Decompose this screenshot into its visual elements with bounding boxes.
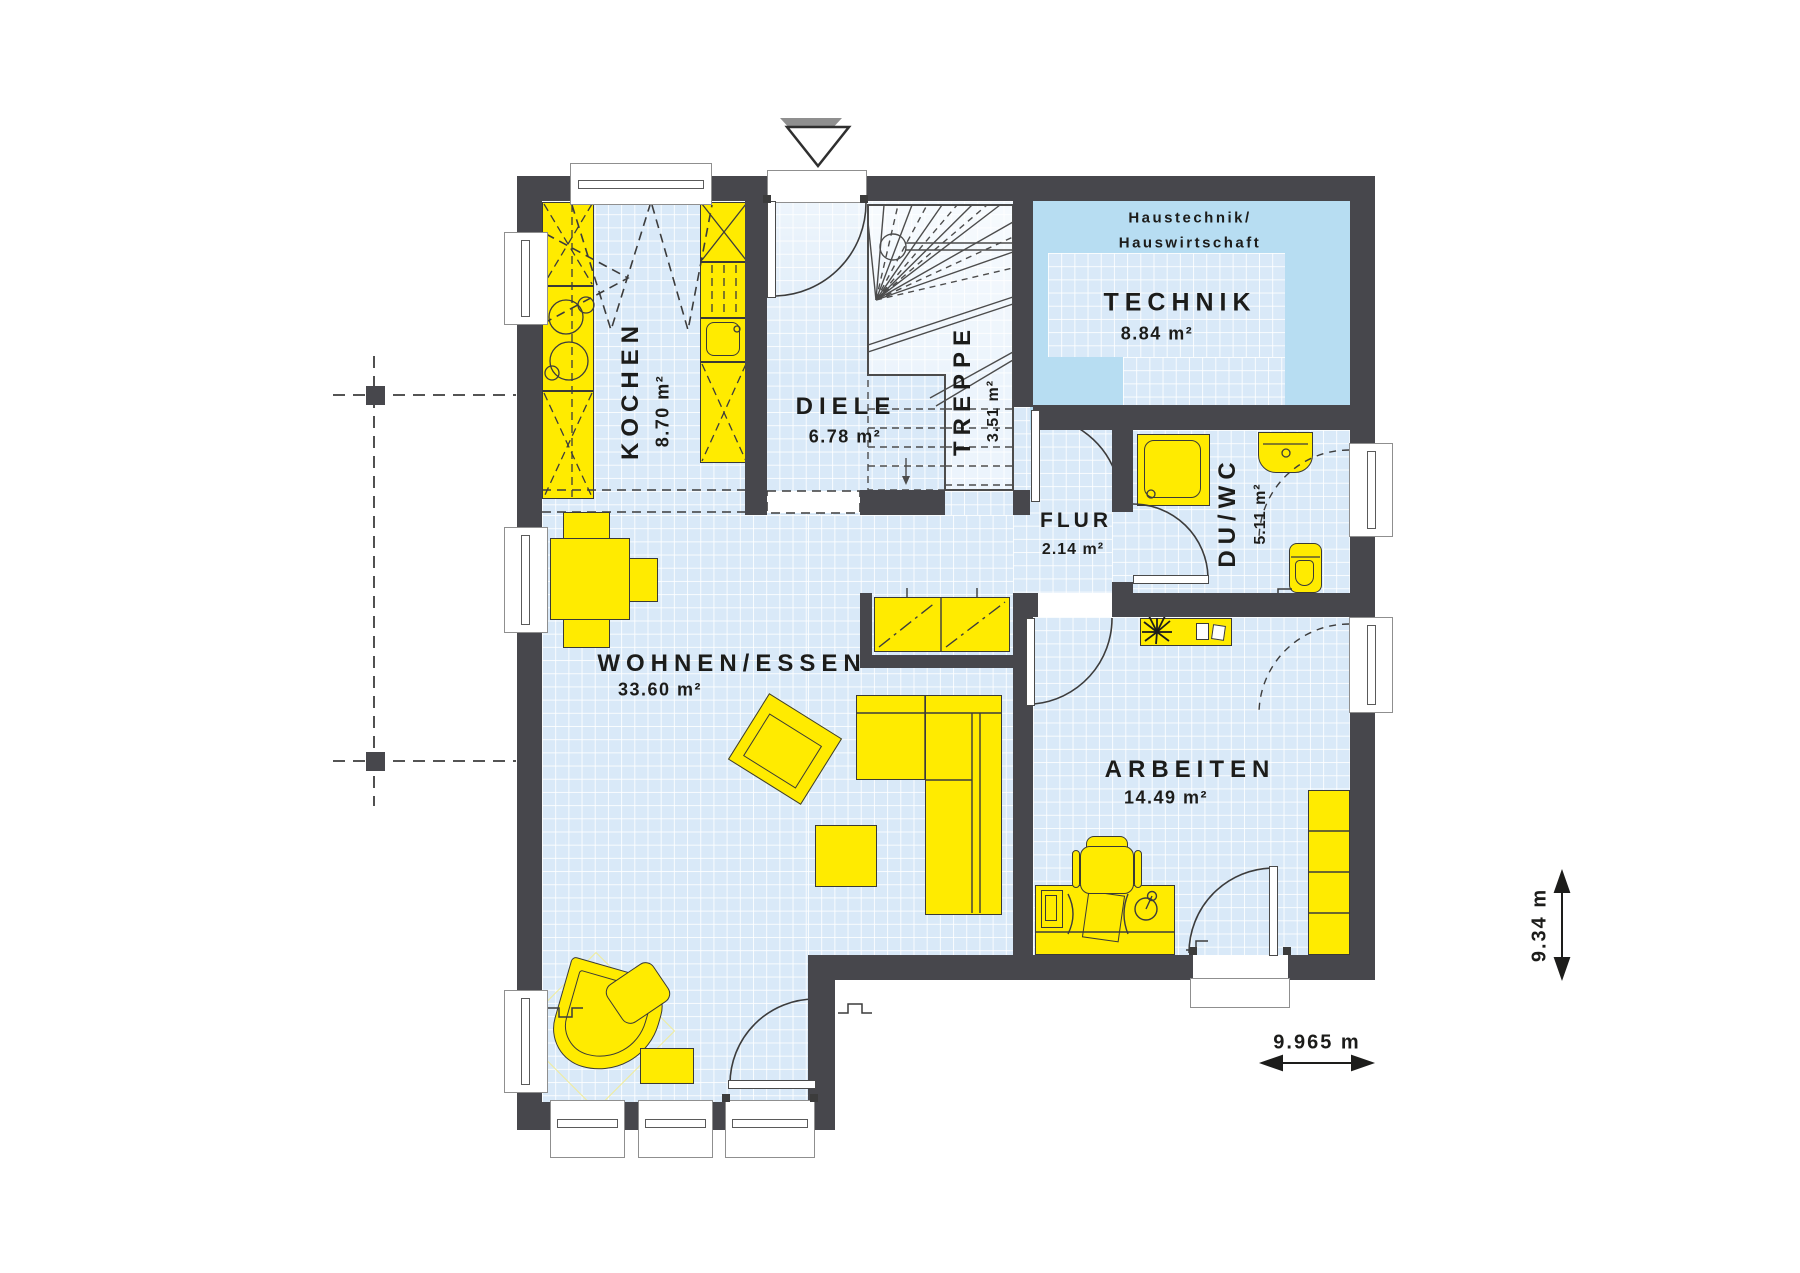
wall-bottom-right-1	[808, 955, 1193, 980]
side-table	[640, 1048, 694, 1084]
kitchen-sink-cooktop	[542, 286, 594, 391]
window-bottom-2-glass	[645, 1119, 706, 1128]
book-2	[1211, 624, 1226, 641]
wall-bottom-left-4	[815, 1102, 835, 1130]
label-arbeiten: ARBEITEN	[1105, 756, 1276, 784]
washbasin	[1258, 432, 1313, 473]
sofa-vertical	[925, 695, 1002, 915]
window-bottom-2	[638, 1100, 713, 1158]
arbeiten-door-threshold	[1190, 978, 1290, 1008]
kitchen-sink-unit	[700, 318, 748, 362]
office-chair-armrest-right	[1134, 850, 1142, 888]
label-kochen-area: 8.70 m²	[653, 375, 674, 448]
label-technik-area: 8.84 m²	[1121, 324, 1194, 345]
desk-monitor	[1041, 890, 1063, 928]
kitchen-wardrobe-bottom	[700, 362, 748, 463]
dimension-arrow-right	[1555, 872, 1569, 978]
kitchen-sink-basin	[706, 322, 740, 356]
terrace-door-glass	[732, 1119, 808, 1128]
label-duwc-area: 5.11 m²	[1252, 483, 1270, 544]
label-diele: DIELE	[796, 393, 897, 421]
kitchen-cabinet-lower	[542, 391, 594, 499]
wall-bottom-right-2	[1288, 955, 1375, 980]
label-flur-area: 2.14 m²	[1042, 541, 1104, 559]
entrance-marker-icon	[780, 118, 849, 166]
floor-technik-tile-2	[1123, 357, 1285, 408]
desk-paper	[1082, 891, 1125, 943]
label-arbeiten-area: 14.49 m²	[1124, 788, 1208, 809]
label-wohnen-essen-area: 33.60 m²	[618, 680, 702, 701]
arbeiten-exterior-door-stop-left	[1189, 947, 1197, 955]
window-left-dining-glass	[521, 535, 530, 625]
entrance-door-stop-left	[763, 195, 771, 203]
wall-under-stairs-end	[1013, 490, 1030, 515]
window-bottom-1-glass	[557, 1119, 618, 1128]
axis-marker-top	[366, 386, 385, 405]
axis-marker-bottom	[366, 752, 385, 771]
duwc-door-leaf	[1133, 575, 1209, 584]
toilet-bowl	[1295, 560, 1314, 586]
bookshelf	[1308, 790, 1350, 955]
office-chair-armrest-left	[1072, 850, 1080, 888]
dimension-height-label: 9.34 m	[1529, 888, 1552, 962]
dimension-arrow-bottom	[1262, 1056, 1372, 1070]
label-technik-note-1: Haustechnik/	[1128, 210, 1251, 227]
office-chair-seat	[1080, 846, 1134, 894]
label-treppe-area: 3.51 m²	[985, 380, 1003, 442]
wall-bottom-left-1	[517, 1102, 550, 1130]
label-treppe: TREPPE	[949, 324, 977, 456]
window-right-arbeiten-glass	[1367, 625, 1376, 705]
axis-dashed-lines	[333, 356, 516, 806]
toilet	[1289, 543, 1322, 593]
wall-niche-bottom	[860, 655, 1013, 668]
entrance-threshold	[767, 170, 867, 203]
wall-top-2	[712, 176, 767, 201]
entrance-door-leaf	[767, 201, 776, 298]
flur-door-leaf	[1031, 410, 1040, 502]
niche-sideboard	[874, 597, 1010, 652]
window-top-kitchen-glass	[578, 180, 704, 189]
dimension-width-label: 9.965 m	[1273, 1032, 1360, 1055]
window-left-living-glass	[521, 998, 530, 1085]
window-left-kitchen-glass	[521, 240, 530, 317]
entrance-door-stop-right	[860, 195, 868, 203]
wall-right-3	[1350, 713, 1375, 980]
terrace-door-leaf	[728, 1080, 816, 1089]
terrace-door-stop-left	[722, 1094, 730, 1102]
label-kochen: KOCHEN	[617, 320, 645, 460]
wall-right-1	[1350, 176, 1375, 443]
dining-table	[550, 538, 630, 620]
label-duwc: DU/WC	[1214, 456, 1242, 567]
window-right-duwc-glass	[1367, 451, 1376, 529]
wall-left-1	[517, 176, 542, 232]
terrace-door-frame	[725, 1100, 815, 1158]
wall-kitchen-diele	[745, 201, 767, 515]
arbeiten-exterior-door-leaf	[1269, 866, 1278, 956]
sofa-horizontal	[856, 695, 926, 780]
terrace-door-stop-right	[810, 1094, 818, 1102]
floor-plan: KOCHEN 8.70 m² DIELE 6.78 m² TREPPE 3.51…	[0, 0, 1800, 1273]
arbeiten-door-leaf	[1026, 618, 1035, 706]
wall-duwc-west-stub	[1112, 582, 1133, 593]
book-1	[1196, 623, 1209, 640]
shower-tray	[1144, 440, 1201, 498]
coffee-table	[815, 825, 877, 887]
wall-stair-right	[1013, 201, 1033, 407]
wall-duwc-west-upper	[1112, 430, 1133, 512]
label-wohnen-essen: WOHNEN/ESSEN	[597, 650, 866, 678]
wall-left-2	[517, 325, 542, 527]
wall-left-3	[517, 633, 542, 990]
kitchen-wardrobe-top	[700, 202, 748, 262]
wall-bottom-left-2	[625, 1102, 638, 1130]
label-diele-area: 6.78 m²	[809, 427, 882, 448]
label-technik-note-2: Hauswirtschaft	[1119, 235, 1262, 252]
label-technik: TECHNIK	[1103, 289, 1256, 318]
label-flur: FLUR	[1040, 509, 1112, 533]
desk-monitor-screen	[1045, 895, 1057, 921]
wall-duwc-south-2	[1112, 593, 1350, 617]
kitchen-fridge	[700, 262, 748, 318]
wall-right-2	[1350, 537, 1375, 617]
kitchen-cabinet-tall	[542, 202, 594, 286]
wall-technik-south	[1033, 405, 1350, 430]
wall-under-stairs	[860, 490, 945, 515]
window-bottom-1	[550, 1100, 625, 1158]
shower	[1137, 434, 1210, 506]
arbeiten-exterior-door-stop-right	[1283, 947, 1291, 955]
wall-bottom-left-3	[713, 1102, 725, 1130]
wall-top-3	[867, 176, 1375, 201]
